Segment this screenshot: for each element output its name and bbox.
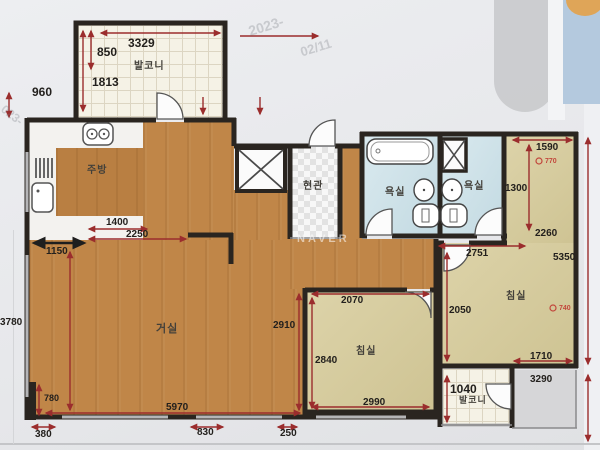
door-balcony-top: [157, 93, 183, 119]
dim-3780: 3780: [0, 318, 22, 328]
label-balcony-bottom: 발코니: [459, 396, 487, 405]
dim-1300: 1300: [505, 184, 527, 194]
door-balcony-bottom: [486, 384, 511, 409]
floor-plan-photo: 3329 850 1813 960 1400 2250 1150 3780 78…: [0, 0, 600, 450]
dim-250: 250: [280, 429, 297, 439]
dim-balcony-width: 3329: [128, 37, 155, 49]
radiator-icon: [36, 158, 52, 178]
dim-2910: 2910: [273, 321, 295, 331]
dim-3290: 3290: [530, 375, 552, 385]
dim-2070: 2070: [341, 296, 363, 306]
dim-850: 850: [97, 46, 117, 58]
door-bath-left: [366, 209, 392, 235]
dim-770-marker: 770: [545, 158, 557, 165]
dim-2250: 2250: [126, 230, 148, 240]
marker-circle-740: [550, 305, 556, 311]
dim-780: 780: [44, 394, 59, 403]
dim-1590: 1590: [536, 143, 558, 153]
dim-1710: 1710: [530, 352, 552, 362]
duct-shaft: [442, 139, 466, 171]
door-entrance: [309, 120, 335, 146]
kitchen-sink-icon: [32, 183, 53, 212]
dim-1040: 1040: [450, 383, 477, 395]
dim-2990: 2990: [363, 398, 385, 408]
dim-2840: 2840: [315, 356, 337, 366]
dim-830: 830: [197, 428, 214, 438]
dim-5350: 5350: [553, 253, 575, 263]
label-bedroom-mid: 침실: [356, 347, 376, 357]
dim-1150: 1150: [46, 247, 68, 257]
door-bath-right: [475, 208, 502, 235]
label-bath-left: 욕실: [385, 188, 405, 198]
label-kitchen: 주방: [87, 166, 107, 176]
dim-380: 380: [35, 430, 52, 440]
dim-960: 960: [32, 86, 52, 98]
label-entrance: 현관: [303, 182, 323, 192]
bathtub-icon: [367, 139, 433, 164]
dim-740-marker: 740: [559, 305, 571, 312]
dim-1400: 1400: [106, 218, 128, 228]
naver-watermark: NAVER: [297, 233, 350, 245]
elevator-shaft: [237, 148, 285, 191]
stove-icon: [83, 123, 113, 145]
dim-2260: 2260: [535, 229, 557, 239]
marker-circle-770: [536, 158, 542, 164]
door-bedroom-mid: [405, 292, 431, 318]
label-bath-right: 욕실: [464, 182, 484, 192]
dim-2050: 2050: [449, 306, 471, 316]
dim-2751: 2751: [466, 249, 488, 259]
toilet-left-icon: [413, 179, 439, 227]
plan-linework: [0, 0, 600, 450]
label-living: 거실: [156, 324, 178, 335]
label-bedroom-right: 침실: [506, 292, 526, 302]
label-balcony-top: 발코니: [134, 62, 165, 72]
dim-1813: 1813: [92, 76, 119, 88]
dim-5970: 5970: [166, 403, 188, 413]
